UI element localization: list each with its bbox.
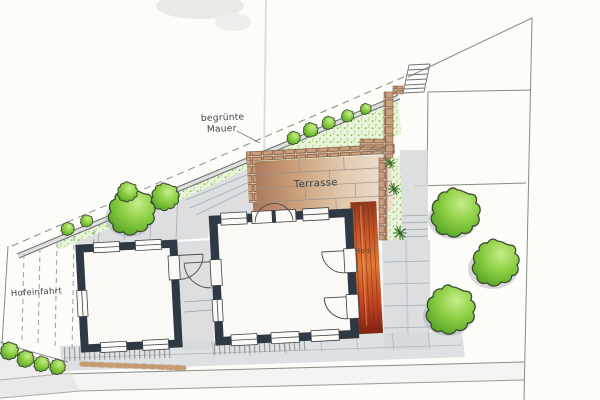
main-house-interior: [218, 217, 351, 336]
paving-east-steps: [400, 150, 428, 240]
greened-wall-label-line1: begrünte: [201, 112, 245, 124]
shrub: [117, 182, 137, 202]
wood-deck-label: Holz: [355, 246, 372, 255]
garage-interior: [84, 248, 175, 344]
site-plan-canvas: Terrasse Holz: [0, 0, 600, 400]
shrub: [61, 222, 74, 235]
terrace-label: Terrasse: [293, 177, 338, 190]
site-plan-page: Terrasse Holz: [0, 0, 600, 400]
greened-wall-label-line2: Mauer: [207, 124, 237, 135]
shrub: [80, 215, 92, 227]
